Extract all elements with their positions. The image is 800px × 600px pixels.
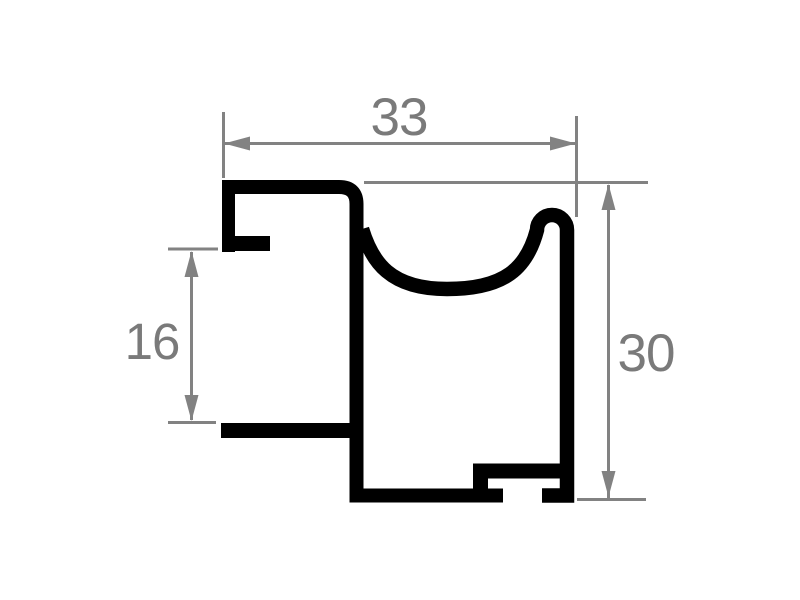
dimension-width-33: 33 [224,88,577,217]
arrowhead-up-icon [602,184,616,210]
drawing-canvas: 33 16 30 [0,0,800,600]
profile-cove-right-wall [362,215,567,496]
profile-outline [221,180,567,496]
profile-step-channel [481,471,561,491]
dimension-label-width: 33 [371,88,428,147]
dimension-rabbet-16: 16 [125,249,218,423]
arrowhead-up-icon [185,251,199,277]
technical-drawing: 33 16 30 [0,0,800,600]
arrowhead-down-icon [185,395,199,421]
dimension-label-rabbet: 16 [125,313,180,370]
dimension-height-30: 30 [364,183,674,500]
dimension-label-height: 30 [618,324,675,383]
arrowhead-down-icon [602,471,616,497]
arrowhead-left-icon [224,137,250,151]
arrowhead-right-icon [550,137,576,151]
